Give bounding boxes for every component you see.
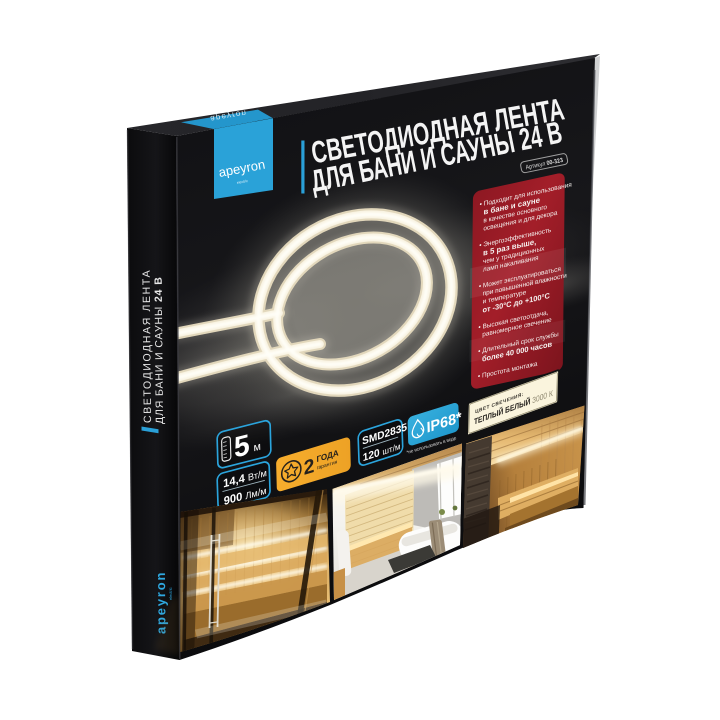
svg-text:electric: electric	[168, 587, 173, 600]
svg-text:2: 2	[303, 455, 314, 480]
svg-text:ДЛЯ БАНИ И САУНЫ 24 В: ДЛЯ БАНИ И САУНЫ 24 В	[153, 277, 166, 424]
svg-text:м: м	[253, 440, 261, 454]
svg-text:5: 5	[234, 429, 251, 465]
